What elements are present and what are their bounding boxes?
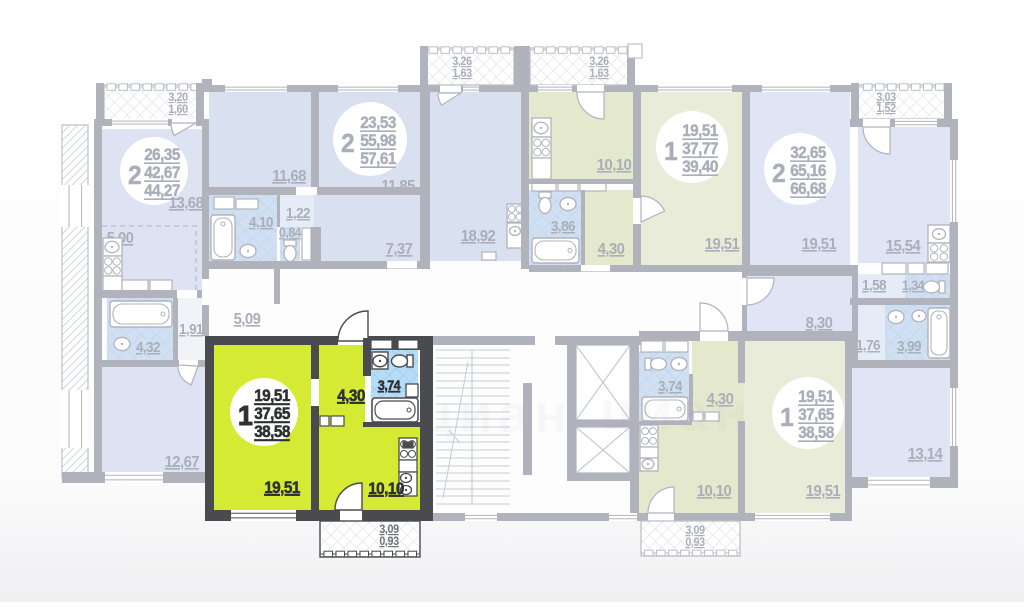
svg-text:66,68: 66,68 [790, 181, 826, 199]
svg-text:4,30: 4,30 [598, 241, 625, 259]
svg-text:37,77: 37,77 [682, 141, 718, 159]
svg-text:3,99: 3,99 [897, 338, 922, 355]
svg-text:37,65: 37,65 [254, 406, 290, 424]
svg-text:2: 2 [772, 159, 786, 188]
svg-text:11,68: 11,68 [272, 168, 307, 186]
svg-text:3,26: 3,26 [589, 56, 609, 68]
svg-text:26,35: 26,35 [144, 147, 180, 165]
svg-text:3,09: 3,09 [379, 524, 399, 536]
svg-text:8,30: 8,30 [806, 315, 833, 333]
svg-text:1,22: 1,22 [286, 205, 311, 222]
svg-text:2: 2 [128, 161, 142, 190]
svg-text:10,10: 10,10 [697, 483, 731, 501]
svg-text:4,32: 4,32 [136, 339, 161, 356]
svg-text:19,51: 19,51 [682, 123, 718, 141]
svg-text:13,14: 13,14 [908, 446, 943, 464]
svg-text:55,98: 55,98 [360, 133, 396, 151]
svg-text:2: 2 [341, 129, 355, 158]
svg-text:3,74: 3,74 [378, 378, 401, 394]
svg-text:3,86: 3,86 [551, 218, 576, 235]
svg-text:23,53: 23,53 [360, 115, 396, 133]
svg-text:0,84: 0,84 [279, 225, 302, 241]
svg-text:циан: циан [420, 384, 573, 444]
svg-text:4,30: 4,30 [337, 388, 365, 406]
svg-text:10,10: 10,10 [597, 157, 631, 175]
svg-text:1: 1 [664, 137, 678, 166]
svg-text:1,63: 1,63 [589, 68, 609, 80]
svg-text:1,34: 1,34 [902, 278, 925, 294]
svg-text:1: 1 [238, 399, 253, 431]
svg-text:1,76: 1,76 [856, 337, 881, 354]
svg-text:19,51: 19,51 [705, 236, 740, 254]
svg-text:0,93: 0,93 [685, 537, 705, 549]
svg-text:1,91: 1,91 [179, 321, 204, 338]
svg-text:3,09: 3,09 [685, 525, 705, 537]
svg-text:19,51: 19,51 [798, 389, 834, 407]
svg-text:7,37: 7,37 [386, 241, 413, 259]
svg-text:10,10: 10,10 [368, 481, 404, 499]
svg-text:19,51: 19,51 [264, 480, 300, 498]
svg-text:32,65: 32,65 [790, 145, 826, 163]
svg-text:19,51: 19,51 [806, 483, 841, 501]
svg-text:4,10: 4,10 [249, 214, 274, 231]
svg-text:3,26: 3,26 [452, 56, 472, 68]
svg-text:42,67: 42,67 [144, 165, 180, 183]
svg-text:12,67: 12,67 [165, 454, 199, 472]
svg-text:5,09: 5,09 [234, 311, 262, 329]
svg-text:15,54: 15,54 [886, 238, 921, 256]
svg-text:38,58: 38,58 [254, 424, 290, 442]
svg-text:13,68: 13,68 [169, 195, 204, 213]
svg-text:0,93: 0,93 [379, 536, 399, 548]
svg-text:1: 1 [780, 403, 794, 432]
svg-text:19,51: 19,51 [254, 388, 290, 406]
svg-text:18,92: 18,92 [461, 228, 495, 246]
svg-text:1,58: 1,58 [862, 277, 887, 294]
svg-text:3,20: 3,20 [168, 92, 188, 104]
svg-text:19,51: 19,51 [802, 236, 837, 254]
svg-text:39,40: 39,40 [682, 159, 718, 177]
svg-text:37,65: 37,65 [798, 407, 834, 425]
svg-text:1,63: 1,63 [452, 68, 472, 80]
svg-text:57,61: 57,61 [360, 151, 396, 169]
svg-text:циан: циан [600, 382, 753, 442]
svg-text:38,58: 38,58 [798, 425, 834, 443]
svg-text:1,52: 1,52 [876, 103, 896, 115]
svg-text:1,60: 1,60 [168, 104, 188, 116]
svg-text:65,16: 65,16 [790, 163, 826, 181]
